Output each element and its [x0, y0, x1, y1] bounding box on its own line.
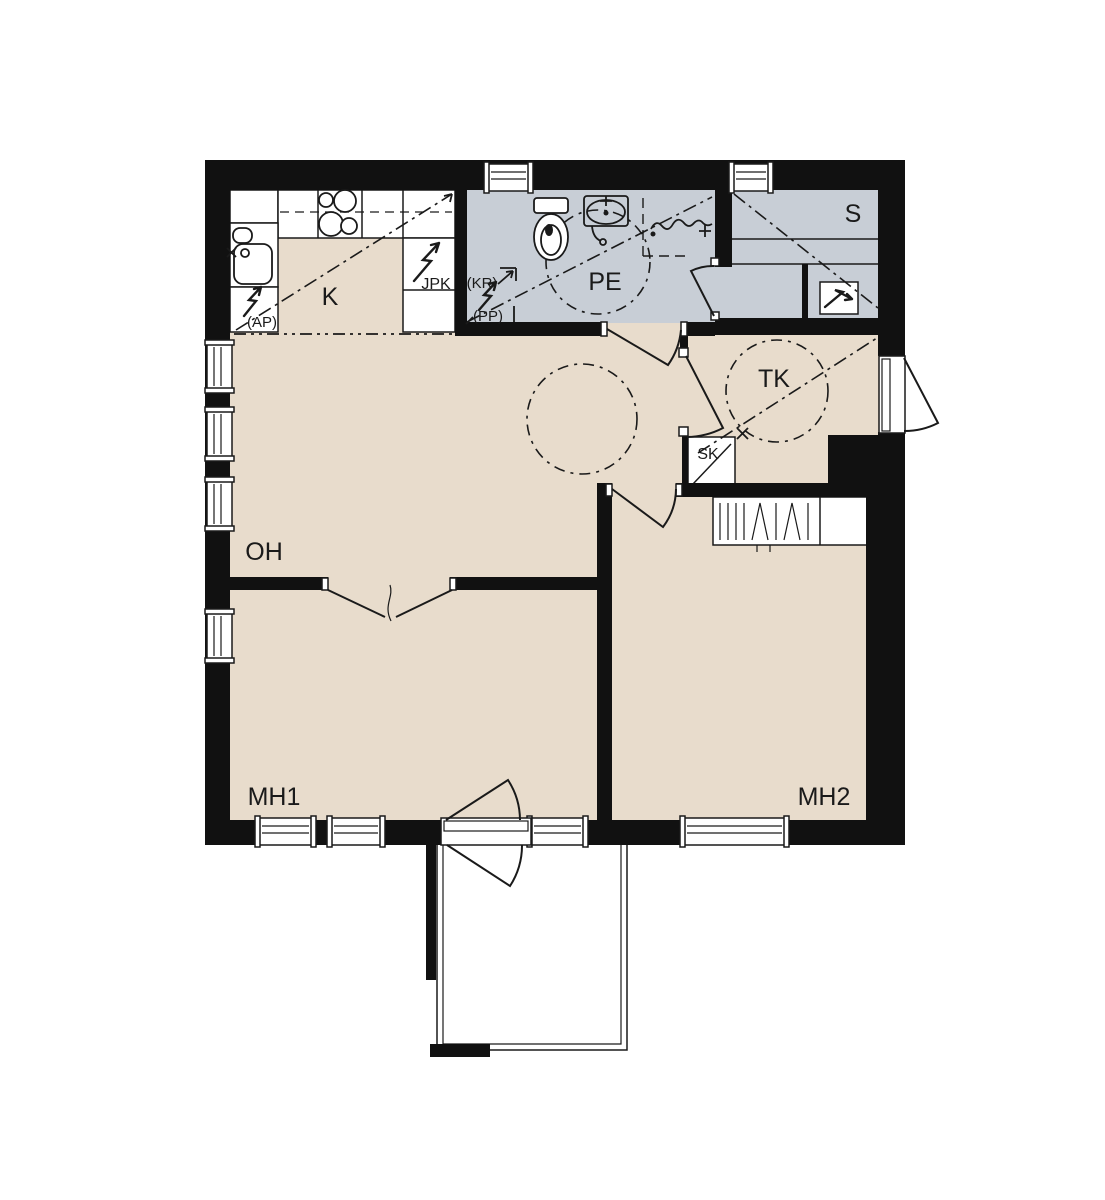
entrance-door-swing — [904, 358, 938, 431]
wall-washroom-sauna — [715, 190, 732, 267]
sauna-doorway-floor — [715, 266, 732, 318]
window-living-3 — [205, 477, 234, 531]
room-label-sauna: S — [845, 200, 862, 228]
terrace-wall-bottom — [430, 1044, 490, 1057]
label-washer-reservation: (PP) — [473, 308, 503, 325]
wall-right-upper — [878, 160, 905, 356]
toilet-icon — [534, 198, 568, 260]
window-sauna — [729, 162, 773, 193]
window-bedroom1-b2 — [327, 816, 385, 847]
wall-bedroom-divider — [597, 483, 612, 822]
wall-entry-block — [828, 435, 905, 490]
terrace-outline — [437, 845, 627, 1050]
label-cleaning-closet: SK — [697, 446, 719, 463]
room-label-bedroom1: MH1 — [248, 783, 301, 811]
wall-living-bedroom1-right — [450, 577, 597, 590]
room-label-kitchen: K — [322, 283, 339, 311]
kitchen-corner-counter — [230, 190, 278, 223]
floor-plan-page: K PE S TK OH MH1 MH2 SK JPK (KR) (PP) (A… — [0, 0, 1105, 1200]
room-label-living-room: OH — [245, 538, 283, 566]
kitchen-counter — [278, 190, 455, 238]
window-living-2 — [205, 407, 234, 461]
wall-right-inner — [866, 490, 905, 822]
window-bedroom1-left — [205, 609, 234, 663]
window-bedroom1-b3 — [527, 816, 588, 847]
window-bedroom1-b1 — [255, 816, 316, 847]
window-living-1 — [205, 340, 234, 393]
window-bedroom2 — [680, 816, 789, 847]
terrace-wall-left — [426, 845, 436, 980]
wall-living-bedroom1-left — [230, 577, 328, 590]
wall-hall-bedroom2 — [676, 483, 868, 497]
terrace-door-swing-outside — [447, 845, 522, 886]
floor-plan-drawing: K PE S TK OH MH1 MH2 SK JPK (KR) (PP) (A… — [0, 0, 1105, 1200]
label-dryer-reservation: (KR) — [467, 275, 498, 292]
entrance-door-opening — [879, 356, 905, 433]
label-dishwasher-reservation: (AP) — [247, 314, 277, 331]
wall-top — [205, 160, 905, 190]
terrace-inner-line — [443, 845, 621, 1044]
room-label-vestibule: TK — [758, 365, 790, 393]
wall-sauna-bottom — [715, 318, 882, 335]
window-washroom — [484, 162, 533, 193]
room-label-washroom: PE — [588, 268, 621, 296]
label-fridge-freezer: JPK — [421, 276, 451, 293]
room-label-bedroom2: MH2 — [798, 783, 851, 811]
wall-kitchen-washroom — [455, 160, 467, 336]
